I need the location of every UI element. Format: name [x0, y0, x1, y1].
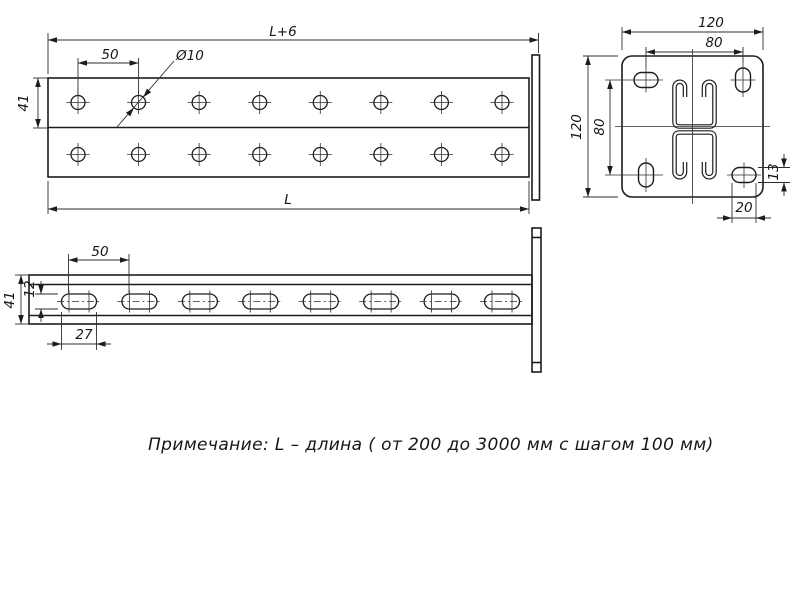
- end-plate-edge: [532, 55, 540, 200]
- drawing-page: L+6 L 50 Ø10 41: [0, 0, 800, 600]
- top-view-holes: [67, 91, 514, 166]
- side-view-dim-lines: [15, 254, 129, 350]
- dim-hole-pitch-label: 50: [101, 47, 118, 63]
- dim-hole-pitch-v-label: 80: [592, 118, 608, 135]
- top-view: L+6 L 50 Ø10 41: [16, 24, 540, 214]
- dim-slot-length-label: 27: [75, 327, 93, 343]
- top-view-labels: L+6 L 50 Ø10 41: [16, 24, 297, 208]
- dim-slot-h-label: 12: [22, 280, 38, 297]
- dim-overall-plus-label: L+6: [269, 24, 296, 40]
- dim-plate-height-label: 120: [569, 114, 585, 140]
- side-view-labels: 50 41 12 27: [2, 244, 109, 343]
- note-text: Примечание: L – длина ( от 200 до 3000 м…: [148, 435, 714, 455]
- side-view-arrows: [18, 257, 129, 347]
- dim-hole-pitch-h-label: 80: [705, 35, 722, 51]
- end-plate-side: [532, 228, 541, 372]
- channel-cross-section: [675, 82, 715, 178]
- side-view: 50 41 12 27: [2, 228, 541, 372]
- dim-slot-width-label: 20: [735, 200, 752, 216]
- end-view: 120 80 120 80 13 20: [569, 15, 790, 223]
- top-view-body: [48, 55, 540, 200]
- dim-profile-height-label: 41: [2, 291, 18, 308]
- dim-hole-diameter-label: Ø10: [175, 48, 204, 64]
- technical-drawing: L+6 L 50 Ø10 41: [0, 0, 800, 600]
- dim-slot-pitch-label: 50: [91, 244, 108, 260]
- dim-slot-height-label: 13: [766, 163, 782, 180]
- dim-plate-width-label: 120: [698, 15, 724, 31]
- side-view-slots: [57, 291, 524, 313]
- dim-length-label: L: [284, 192, 292, 208]
- dim-row-width-label: 41: [16, 94, 32, 111]
